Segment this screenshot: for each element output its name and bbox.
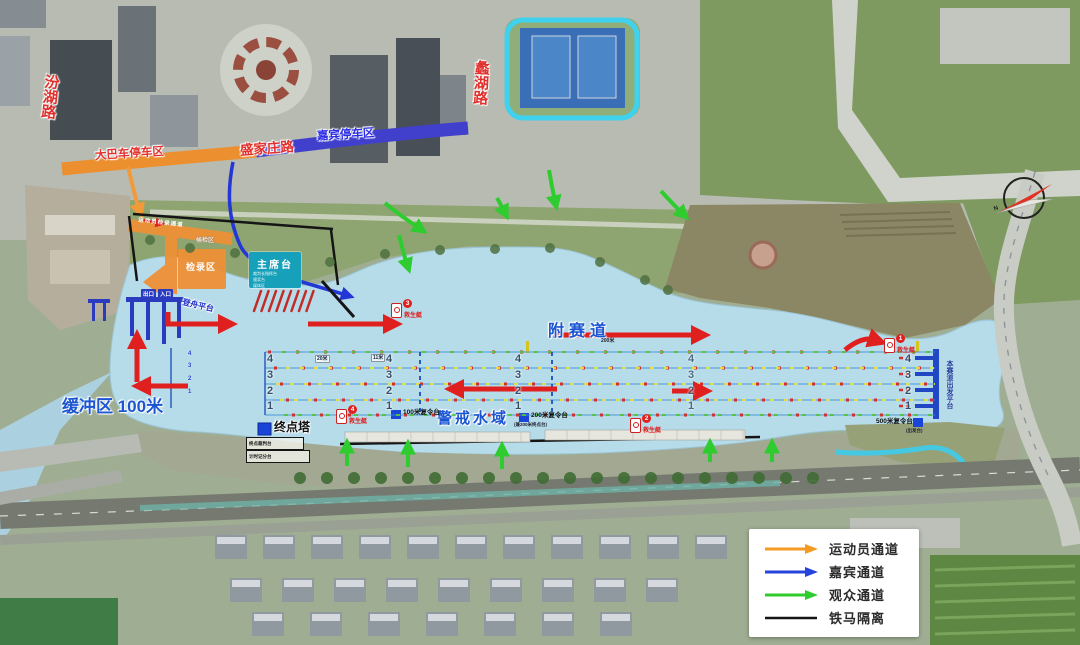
lane-number: 3 bbox=[386, 369, 392, 381]
rescue-boat-marker-1: 1 救生艇 bbox=[884, 336, 924, 354]
lane-number: 3 bbox=[267, 369, 273, 381]
lifebuoy-icon bbox=[336, 409, 347, 424]
lane-number: 1 bbox=[386, 400, 392, 412]
lane-number: 3 bbox=[905, 369, 911, 381]
lane-number: 3 bbox=[688, 369, 694, 381]
check-in-zone-label: 检录区 bbox=[186, 263, 216, 272]
buffer-lane-number: 2 bbox=[188, 376, 191, 382]
lane-number: 4 bbox=[905, 353, 911, 365]
width-tag-20m: 20米 bbox=[315, 355, 330, 363]
lifebuoy-icon bbox=[630, 418, 641, 433]
lane-number: 4 bbox=[386, 353, 392, 365]
lane-number: 2 bbox=[267, 385, 273, 397]
rescue-boat-marker-4: 4 救生艇 bbox=[336, 407, 376, 425]
rostrum-notes: 裁判长指挥台 颁奖台 媒体区 bbox=[249, 271, 301, 289]
lane-number: 1 bbox=[688, 400, 694, 412]
buffer-lane-number: 4 bbox=[188, 351, 191, 357]
finish-note-2: 计时记分台 bbox=[246, 450, 310, 463]
rescue-boat-marker-2: 2 救生艇 bbox=[630, 416, 670, 434]
warning-water-label: 警戒水域 bbox=[437, 411, 509, 426]
start-platform-label: 本赛道出发平台 bbox=[946, 360, 953, 409]
width-tag-11m: 11米 bbox=[371, 354, 385, 362]
athlete-channel-arrow-icon bbox=[763, 543, 819, 555]
buffer-lane-number: 1 bbox=[188, 389, 191, 395]
vip-channel-arrow-icon bbox=[763, 566, 819, 578]
relay-500-label: 500米复令台 bbox=[876, 419, 913, 426]
lane-number: 1 bbox=[515, 400, 521, 412]
lane-number: 3 bbox=[515, 369, 521, 381]
legend-box: 运动员通道 嘉宾通道 观众通道 铁马隔离 bbox=[749, 529, 919, 637]
lifebuoy-icon bbox=[391, 303, 402, 318]
legend-item-spectator-channel: 观众通道 bbox=[763, 585, 905, 604]
relay-100-label: 100米复令台 bbox=[403, 410, 440, 417]
lane-number: 2 bbox=[688, 385, 694, 397]
legend-item-barrier: 铁马隔离 bbox=[763, 608, 905, 627]
lane-number: 4 bbox=[515, 353, 521, 365]
aux-track-length: 200米 bbox=[601, 337, 614, 344]
lane-number: 4 bbox=[267, 353, 273, 365]
waiting-zone-label: 候检区 bbox=[196, 238, 214, 244]
rescue-boat-marker-3: 3 救生艇 bbox=[391, 301, 431, 319]
buffer-zone-label: 缓冲区 100米 bbox=[62, 398, 163, 415]
lane-number: 1 bbox=[267, 400, 273, 412]
relay-500-note: (出发台) bbox=[906, 428, 923, 434]
lane-number: 2 bbox=[905, 385, 911, 397]
buffer-lane-number: 3 bbox=[188, 363, 191, 369]
spectator-channel-arrow-icon bbox=[763, 589, 819, 601]
cuihu-road-label: 蠡湖路 bbox=[472, 60, 489, 106]
rostrum-box: 主席台 裁判长指挥台 颁奖台 媒体区 bbox=[249, 252, 301, 288]
legend-item-athlete-channel: 运动员通道 bbox=[763, 539, 905, 558]
barrier-line-icon bbox=[763, 612, 819, 624]
venue-map: 汾湖路 蠡湖路 大巴车停车区 盛家庄路 嘉宾停车区 主席台 裁判长指挥台 颁奖台… bbox=[0, 0, 1080, 645]
lane-number: 4 bbox=[688, 353, 694, 365]
lifebuoy-icon bbox=[884, 338, 895, 353]
rostrum-label: 主席台 bbox=[249, 256, 301, 271]
lane-number: 2 bbox=[515, 385, 521, 397]
lane-number: 1 bbox=[905, 400, 911, 412]
finish-note-1: 终点裁判台 bbox=[246, 437, 304, 450]
relay-200-note: (兼200米终点台) bbox=[514, 422, 547, 428]
dock-exit-tag: 出口 bbox=[141, 289, 156, 298]
lane-number: 2 bbox=[386, 385, 392, 397]
dock-entry-tag: 入口 bbox=[158, 289, 173, 298]
legend-item-vip-channel: 嘉宾通道 bbox=[763, 562, 905, 581]
relay-200-label: 200米复令台 bbox=[531, 413, 568, 420]
finish-tower-label: 终点塔 bbox=[274, 421, 310, 433]
